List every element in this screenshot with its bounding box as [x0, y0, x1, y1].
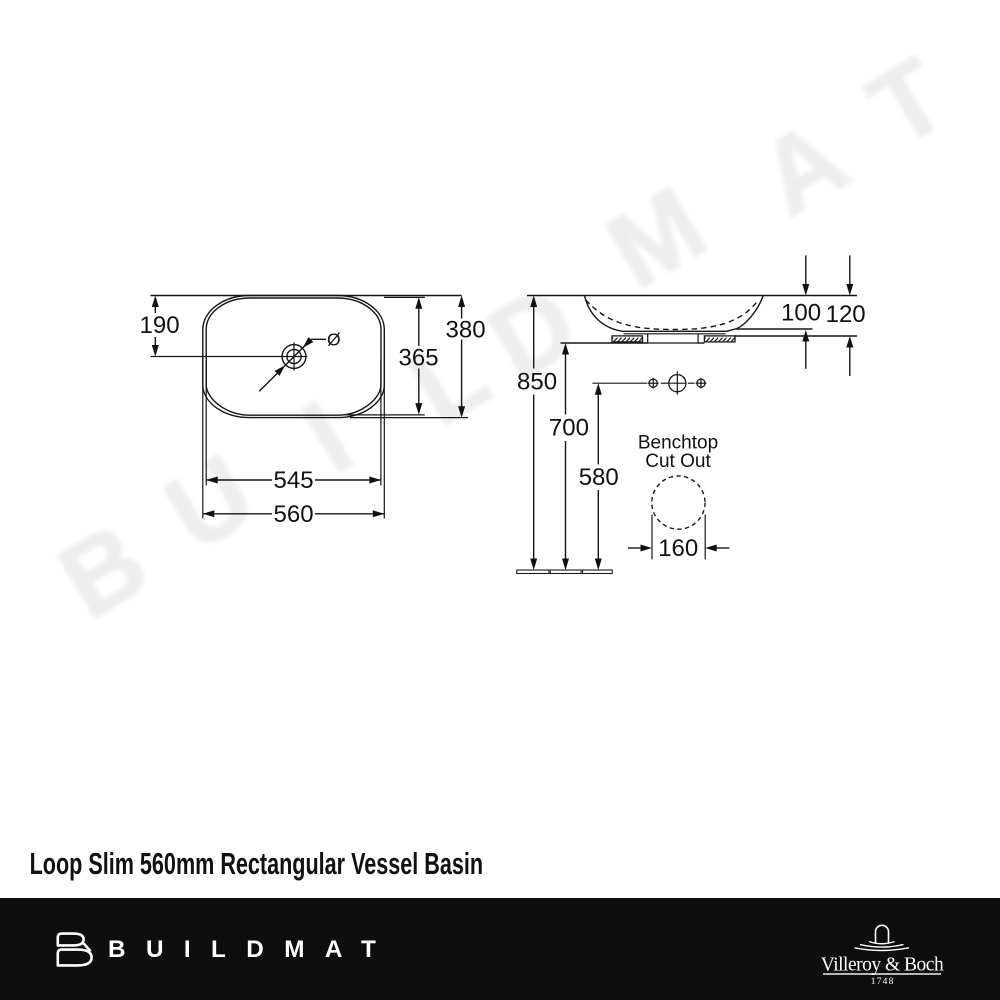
svg-text:580: 580	[579, 464, 619, 491]
svg-text:BUILDMAT: BUILDMAT	[108, 936, 396, 963]
svg-text:120: 120	[826, 301, 866, 328]
svg-text:Cut Out: Cut Out	[645, 451, 711, 472]
svg-text:Ø: Ø	[327, 329, 341, 349]
svg-text:Villeroy & Boch: Villeroy & Boch	[821, 955, 944, 976]
svg-text:190: 190	[140, 312, 180, 339]
svg-text:850: 850	[517, 368, 557, 395]
svg-text:380: 380	[446, 317, 486, 344]
svg-text:100: 100	[781, 299, 821, 326]
svg-text:545: 545	[274, 467, 314, 494]
svg-text:160: 160	[658, 535, 698, 562]
svg-text:700: 700	[549, 415, 589, 442]
svg-text:365: 365	[399, 345, 439, 372]
svg-text:Loop Slim 560mm Rectangular Ve: Loop Slim 560mm Rectangular Vessel Basin	[30, 846, 483, 881]
svg-text:560: 560	[274, 501, 314, 528]
svg-text:1748: 1748	[871, 977, 895, 987]
